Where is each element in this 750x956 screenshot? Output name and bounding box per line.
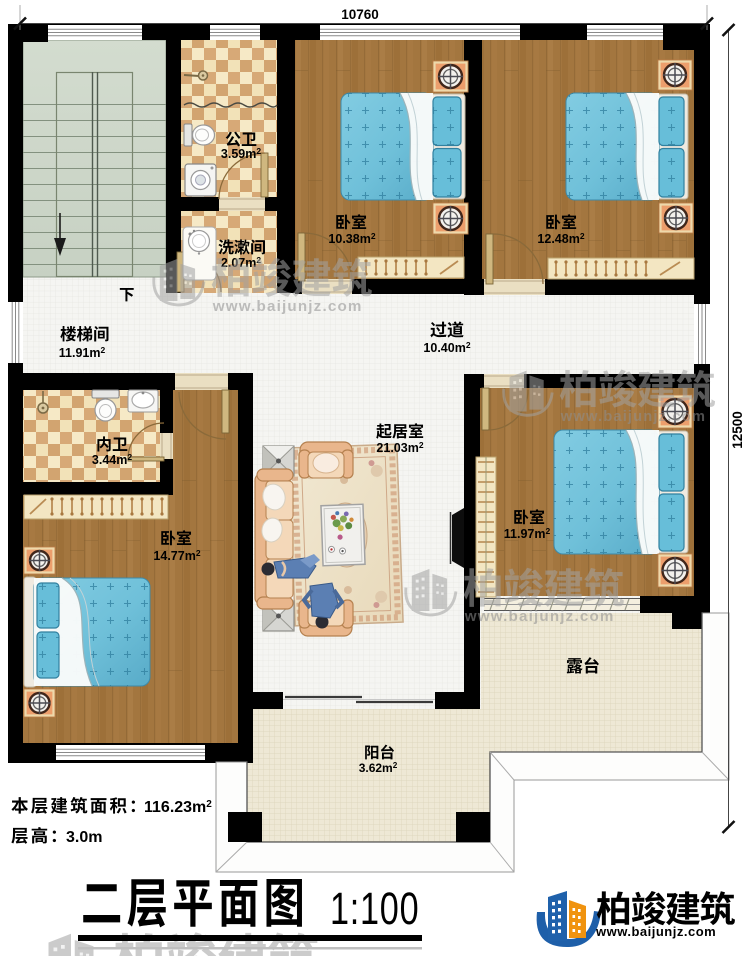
svg-text:www.baijunjz.com: www.baijunjz.com xyxy=(212,298,363,315)
svg-text:www.baijunjz.com: www.baijunjz.com xyxy=(595,924,716,939)
svg-text:10.38m2: 10.38m2 xyxy=(328,231,375,246)
svg-text:10.40m2: 10.40m2 xyxy=(423,340,470,355)
svg-text:www.baijunjz.com: www.baijunjz.com xyxy=(560,409,706,425)
svg-text:21.03m2: 21.03m2 xyxy=(376,440,423,455)
svg-text:11.91m2: 11.91m2 xyxy=(59,345,106,360)
svg-text:116.23m2: 116.23m2 xyxy=(144,799,212,816)
svg-text:3.62m2: 3.62m2 xyxy=(359,761,398,775)
svg-text:11.97m2: 11.97m2 xyxy=(504,526,551,541)
svg-text:3.44m2: 3.44m2 xyxy=(92,452,132,467)
svg-text:14.77m2: 14.77m2 xyxy=(153,548,200,563)
svg-text:www.baijunjz.com: www.baijunjz.com xyxy=(464,608,615,625)
svg-text:12.48m2: 12.48m2 xyxy=(537,231,584,246)
svg-text:3.0m: 3.0m xyxy=(66,829,102,846)
svg-text:3.59m2: 3.59m2 xyxy=(221,146,261,161)
svg-text:10760: 10760 xyxy=(341,7,379,22)
svg-text:12500: 12500 xyxy=(730,411,745,449)
svg-text:1:100: 1:100 xyxy=(330,885,419,935)
